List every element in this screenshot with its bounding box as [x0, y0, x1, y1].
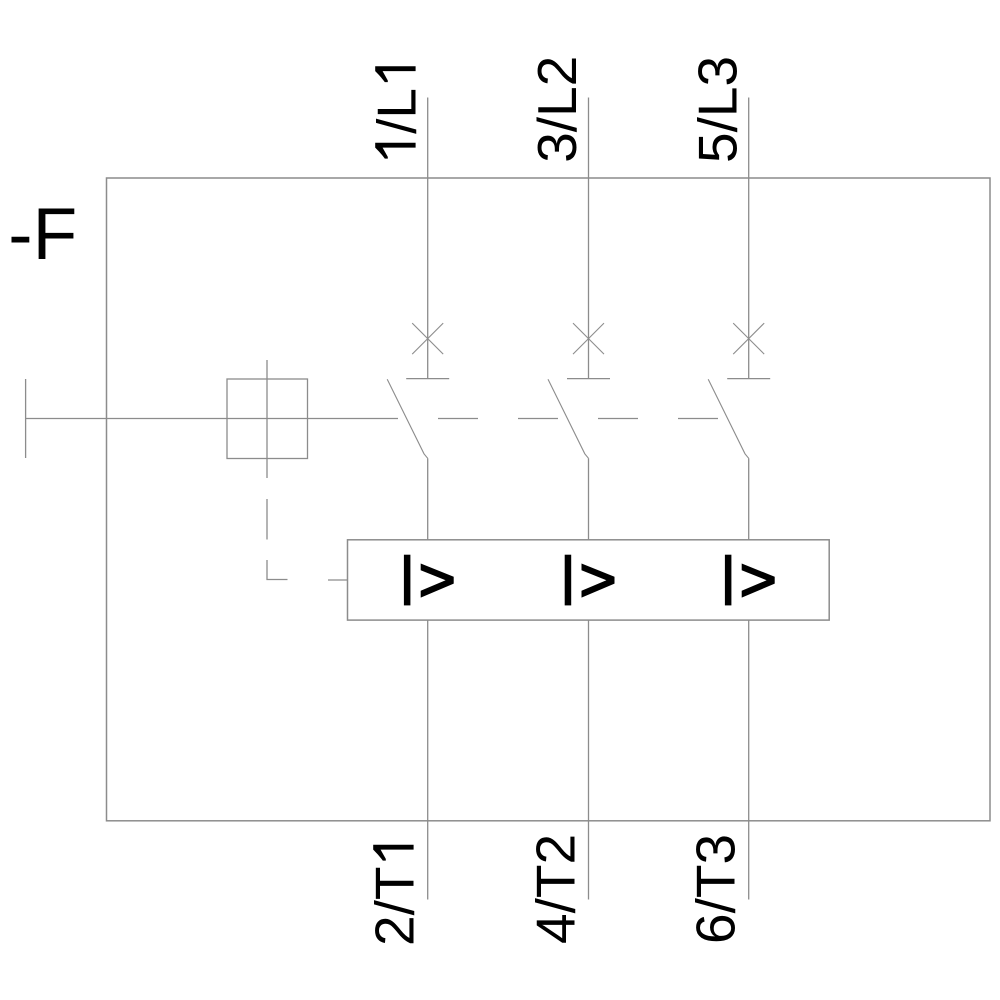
- svg-text:3/L2: 3/L2: [526, 56, 588, 163]
- svg-text:6/T3: 6/T3: [685, 834, 747, 944]
- svg-text:2/T: 2/T: [364, 867, 426, 946]
- svg-text:/L: /L: [366, 88, 428, 134]
- svg-text:-F: -F: [8, 194, 77, 275]
- svg-text:4/T2: 4/T2: [524, 834, 586, 944]
- svg-text:5/L3: 5/L3: [687, 56, 749, 163]
